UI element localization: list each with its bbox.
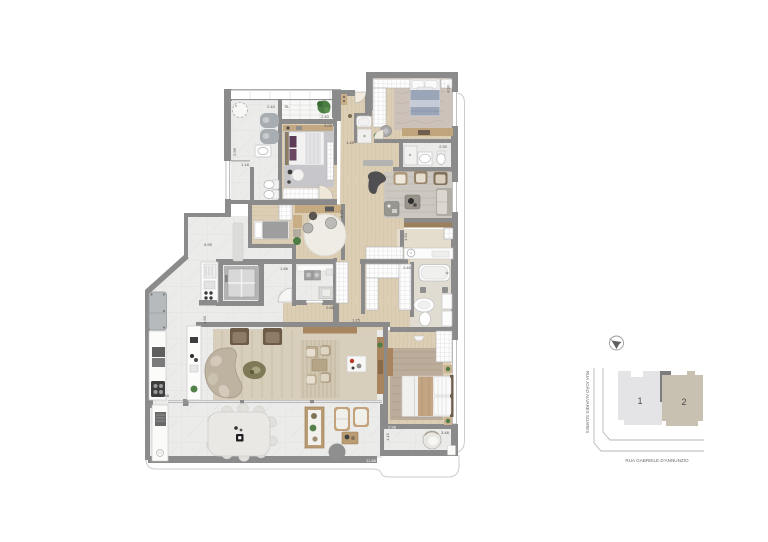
svg-text:5.70: 5.70	[339, 209, 344, 218]
svg-text:2.98: 2.98	[388, 425, 397, 430]
svg-text:4.90: 4.90	[202, 315, 207, 324]
svg-text:2.40: 2.40	[267, 104, 276, 109]
svg-text:1: 1	[637, 396, 642, 406]
svg-text:2.96: 2.96	[232, 147, 237, 156]
svg-text:3.48: 3.48	[441, 430, 450, 435]
svg-text:5.95: 5.95	[204, 242, 213, 247]
svg-text:4.90: 4.90	[446, 84, 451, 93]
svg-text:1.18: 1.18	[241, 162, 250, 167]
svg-text:RUA GABRIELE D'ANNUNZIO: RUA GABRIELE D'ANNUNZIO	[625, 458, 689, 463]
svg-text:SL: SL	[285, 104, 291, 109]
svg-text:1.50: 1.50	[403, 232, 408, 241]
svg-text:1.25: 1.25	[352, 318, 361, 323]
svg-text:0.88: 0.88	[326, 305, 335, 310]
svg-text:3.00: 3.00	[324, 123, 333, 128]
svg-text:2.40: 2.40	[403, 265, 412, 270]
svg-text:2: 2	[681, 397, 686, 407]
svg-text:1.15: 1.15	[385, 432, 390, 441]
svg-text:1.45: 1.45	[346, 140, 355, 145]
svg-text:RUA JOÃO ALVARES SOARES: RUA JOÃO ALVARES SOARES	[585, 371, 590, 433]
svg-text:2.48: 2.48	[161, 393, 170, 398]
svg-text:11.88: 11.88	[366, 458, 376, 463]
svg-text:2.40: 2.40	[321, 114, 330, 119]
svg-text:2.30: 2.30	[439, 144, 448, 149]
svg-text:1.66: 1.66	[280, 266, 289, 271]
